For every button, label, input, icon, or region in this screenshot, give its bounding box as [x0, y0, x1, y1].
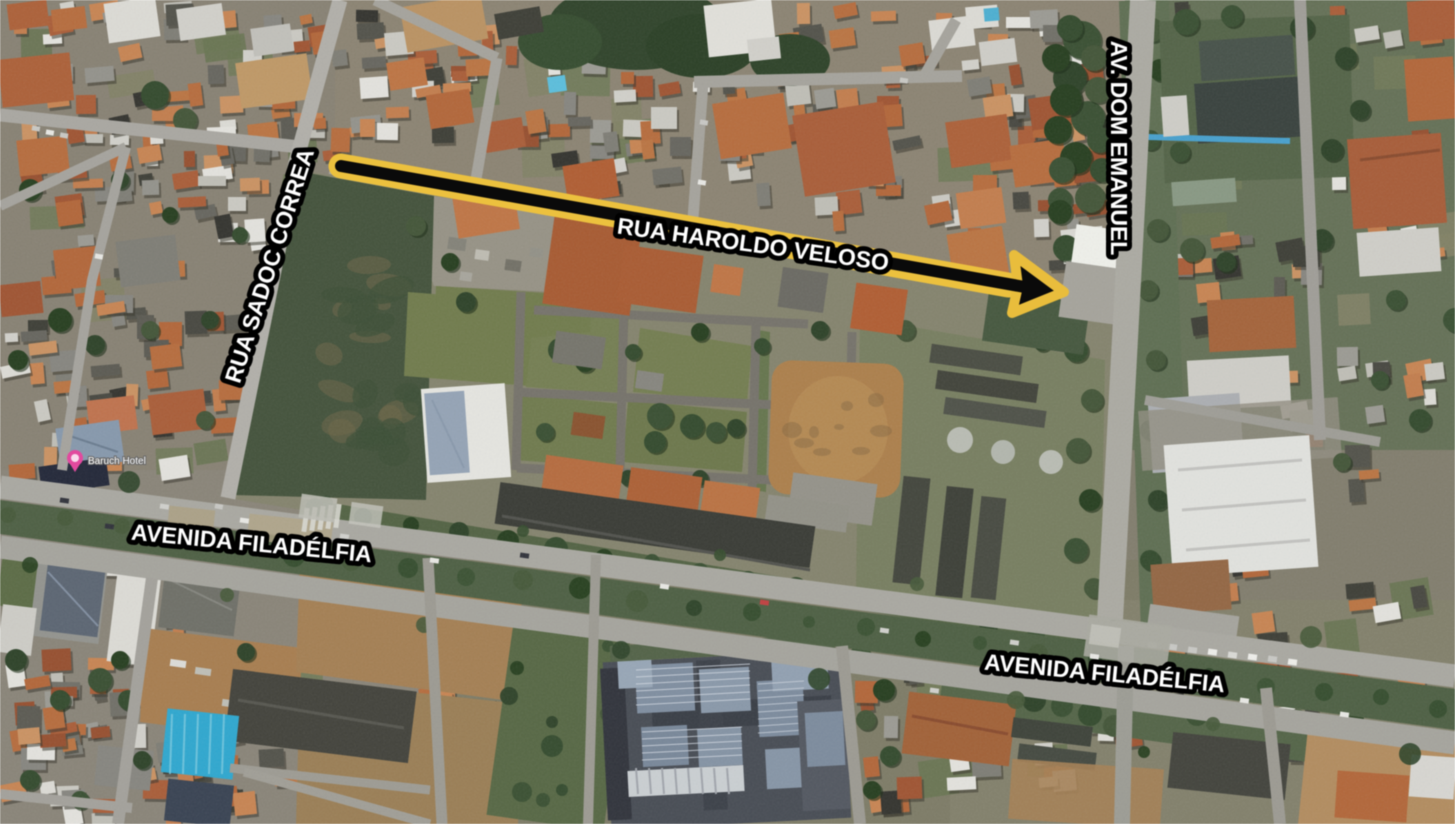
svg-text:Baruch Hotel: Baruch Hotel	[88, 456, 146, 467]
svg-text:AV. DOM EMANUEL: AV. DOM EMANUEL	[1106, 41, 1132, 256]
